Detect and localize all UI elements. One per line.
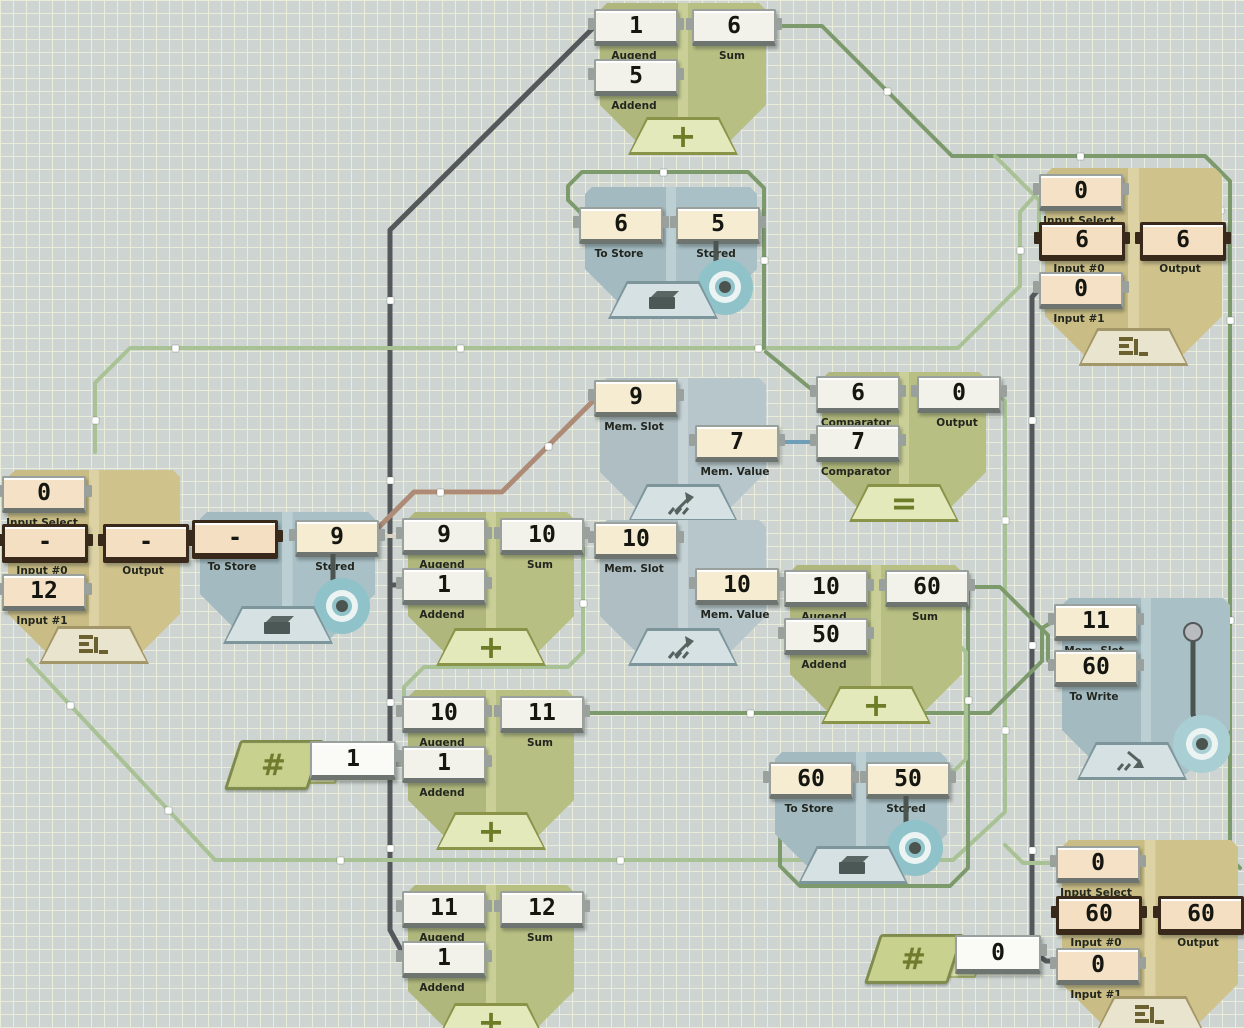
port-label: Mem. Slot [574, 421, 694, 433]
port-label: Input #1 [0, 615, 102, 627]
plus-icon: + [436, 628, 546, 666]
port-comparator-b[interactable]: 7 [816, 425, 900, 462]
node-memory-write-1[interactable]: 11Mem. Slot 60To Write [1062, 598, 1230, 774]
port-augend[interactable]: 9 [402, 518, 486, 555]
port-input-0[interactable]: - [2, 524, 88, 563]
node-adder-1[interactable]: + 1Augend 5Addend 6Sum [600, 3, 766, 149]
port-label: Addend [382, 609, 502, 621]
memory-write-icon [1077, 742, 1187, 780]
port-to-store[interactable]: 6 [579, 207, 663, 244]
port-augend[interactable]: 10 [784, 570, 868, 607]
port-addend[interactable]: 5 [594, 59, 678, 96]
port-augend[interactable]: 10 [402, 696, 486, 733]
port-label: Output [897, 417, 1017, 429]
port-label: Mem. Slot [574, 563, 694, 575]
port-label: Addend [382, 982, 502, 994]
port-input-1[interactable]: 0 [1056, 948, 1140, 985]
port-label: Stored [275, 561, 395, 573]
port-mem-slot[interactable]: 11 [1054, 604, 1138, 641]
port-label: Sum [480, 932, 600, 944]
port-label: Mem. Value [675, 466, 795, 478]
port-input-select[interactable]: 0 [1039, 174, 1123, 211]
port-input-1[interactable]: 0 [1039, 272, 1123, 309]
port-sum[interactable]: 10 [500, 518, 584, 555]
port-label: Output [1120, 263, 1240, 275]
port-stored[interactable]: 50 [866, 762, 950, 799]
port-label: Sum [672, 50, 792, 62]
node-adder-2[interactable]: + 9Augend 1Addend 10Sum [408, 512, 574, 660]
node-multiplexer-2[interactable]: 0Input Select -Input #0 12Input #1 -Outp… [8, 470, 180, 658]
port-mem-value[interactable]: 7 [695, 425, 779, 462]
port-stored[interactable]: 9 [295, 520, 379, 557]
port-label: Comparator [796, 466, 916, 478]
node-latch-2[interactable]: -To Store 9Stored [200, 512, 375, 638]
node-constant-1[interactable]: # 1 [232, 740, 392, 787]
node-multiplexer-3[interactable]: 0Input Select 60Input #0 0Input #1 60Out… [1062, 840, 1238, 1028]
port-label: Addend [382, 787, 502, 799]
equals-icon: = [849, 484, 959, 522]
port-label: To Write [1034, 691, 1154, 703]
port-input-select[interactable]: 0 [2, 476, 86, 513]
port-addend[interactable]: 1 [402, 746, 486, 783]
node-latch-1[interactable]: 6To Store 5Stored [585, 187, 757, 313]
port-label: To Store [172, 561, 292, 573]
wire-equals-compA[interactable] [766, 352, 816, 393]
port-output[interactable]: 60 [1158, 896, 1244, 935]
port-output[interactable]: 0 [917, 376, 1001, 413]
port-mem-slot[interactable]: 9 [594, 380, 678, 417]
port-addend[interactable]: 1 [402, 941, 486, 978]
node-memory-read-2[interactable]: 10Mem. Slot 10Mem. Value [600, 520, 766, 660]
memory-read-icon [628, 484, 738, 522]
port-label: Sum [865, 611, 985, 623]
constant-value[interactable]: 1 [310, 741, 396, 780]
plus-icon: + [436, 812, 546, 850]
circuit-canvas[interactable]: + 1Augend 5Addend 6Sum 6To Store 5Stored… [0, 0, 1244, 1028]
port-mem-slot[interactable]: 10 [594, 522, 678, 559]
hash-icon: # [864, 934, 964, 984]
multiplexer-icon [39, 626, 149, 664]
wire-stored9-memslot[interactable] [377, 397, 597, 529]
node-equals-1[interactable]: = 6Comparator 7Comparator 0Output [822, 372, 986, 516]
port-input-1[interactable]: 12 [2, 574, 86, 611]
port-input-0[interactable]: 6 [1039, 222, 1125, 261]
port-mem-value[interactable]: 10 [695, 568, 779, 605]
save-disk-icon [223, 606, 333, 644]
constant-value[interactable]: 0 [955, 935, 1041, 974]
plus-icon: + [628, 117, 738, 155]
node-constant-2[interactable]: # 0 [872, 934, 1040, 981]
port-augend[interactable]: 11 [402, 891, 486, 928]
port-output[interactable]: 6 [1140, 222, 1226, 261]
port-sum[interactable]: 11 [500, 696, 584, 733]
node-memory-read-1[interactable]: 9Mem. Slot 7Mem. Value [600, 378, 766, 516]
save-disk-icon [608, 281, 718, 319]
port-addend[interactable]: 1 [402, 568, 486, 605]
memory-read-icon [628, 628, 738, 666]
port-stored[interactable]: 5 [676, 207, 760, 244]
port-to-write[interactable]: 60 [1054, 650, 1138, 687]
port-augend[interactable]: 1 [594, 9, 678, 46]
plus-icon: + [821, 686, 931, 724]
port-sum[interactable]: 12 [500, 891, 584, 928]
port-label: Stored [656, 248, 776, 260]
port-label: Stored [846, 803, 966, 815]
node-adder-3[interactable]: + 10Augend 50Addend 60Sum [790, 565, 962, 718]
port-label: Input #1 [1019, 313, 1139, 325]
port-label: Addend [764, 659, 884, 671]
node-multiplexer-1[interactable]: 0Input Select 6Input #0 0Input #1 6Outpu… [1045, 168, 1222, 360]
port-output[interactable]: - [103, 524, 189, 563]
node-adder-5[interactable]: + 11Augend 1Addend 12Sum [408, 885, 574, 1028]
port-label: Addend [574, 100, 694, 112]
node-latch-3[interactable]: 60To Store 50Stored [775, 752, 947, 878]
port-sum[interactable]: 60 [885, 570, 969, 607]
port-to-store[interactable]: 60 [769, 762, 853, 799]
port-comparator-a[interactable]: 6 [816, 376, 900, 413]
port-addend[interactable]: 50 [784, 618, 868, 655]
multiplexer-icon [1079, 328, 1189, 366]
save-disk-icon [798, 846, 908, 884]
port-label: Sum [480, 737, 600, 749]
port-sum[interactable]: 6 [692, 9, 776, 46]
port-label: Output [1138, 937, 1244, 949]
port-input-select[interactable]: 0 [1056, 846, 1140, 883]
node-adder-4[interactable]: + 10Augend 1Addend 11Sum [408, 690, 574, 844]
multiplexer-icon [1095, 996, 1205, 1028]
port-input-0[interactable]: 60 [1056, 896, 1142, 935]
port-to-store[interactable]: - [192, 520, 278, 559]
